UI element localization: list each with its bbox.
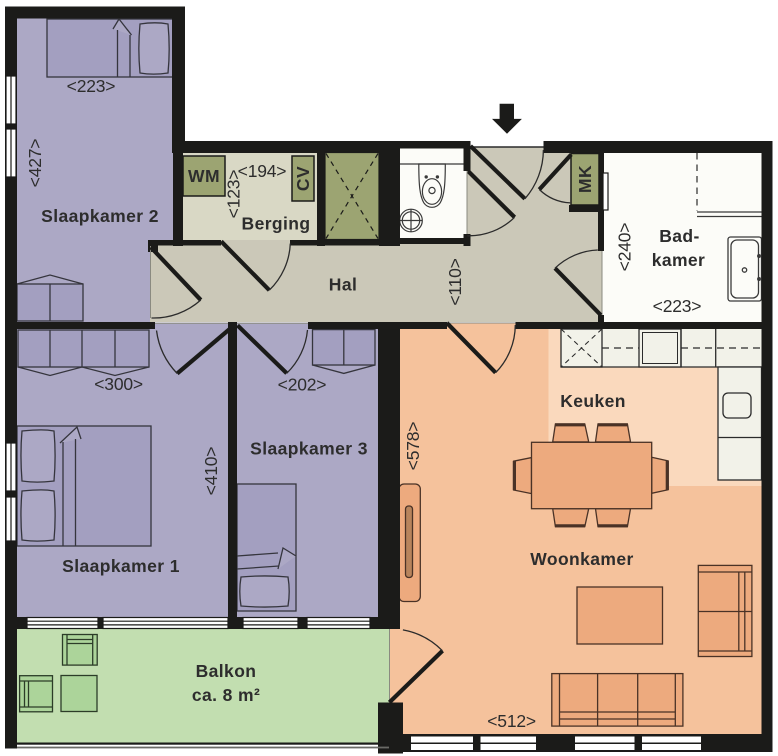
svg-text:Slaapkamer 3: Slaapkamer 3 xyxy=(250,439,368,459)
svg-text:WM: WM xyxy=(188,166,220,186)
svg-text:<240>: <240> xyxy=(615,223,635,272)
svg-text:Bad-: Bad- xyxy=(659,226,700,246)
svg-text:Slaapkamer 1: Slaapkamer 1 xyxy=(62,556,180,576)
svg-text:<578>: <578> xyxy=(403,422,423,471)
svg-text:<123>: <123> xyxy=(224,170,244,219)
svg-text:Woonkamer: Woonkamer xyxy=(530,549,633,569)
svg-text:Berging: Berging xyxy=(242,214,311,234)
svg-text:ca. 8 m²: ca. 8 m² xyxy=(192,685,260,705)
svg-text:<202>: <202> xyxy=(278,375,327,395)
svg-text:Hal: Hal xyxy=(329,275,357,295)
svg-text:kamer: kamer xyxy=(652,250,706,270)
svg-text:<223>: <223> xyxy=(653,296,702,316)
svg-text:<410>: <410> xyxy=(201,447,221,496)
svg-text:<427>: <427> xyxy=(25,139,45,188)
svg-text:<512>: <512> xyxy=(487,711,536,731)
svg-text:CV: CV xyxy=(293,166,313,191)
svg-text:<194>: <194> xyxy=(238,161,287,181)
svg-text:Slaapkamer 2: Slaapkamer 2 xyxy=(41,206,159,226)
svg-text:<300>: <300> xyxy=(94,374,143,394)
svg-text:<110>: <110> xyxy=(445,258,465,305)
svg-text:MK: MK xyxy=(575,165,595,193)
svg-text:Balkon: Balkon xyxy=(196,661,257,681)
svg-text:<223>: <223> xyxy=(67,76,116,96)
svg-text:Keuken: Keuken xyxy=(560,391,626,411)
